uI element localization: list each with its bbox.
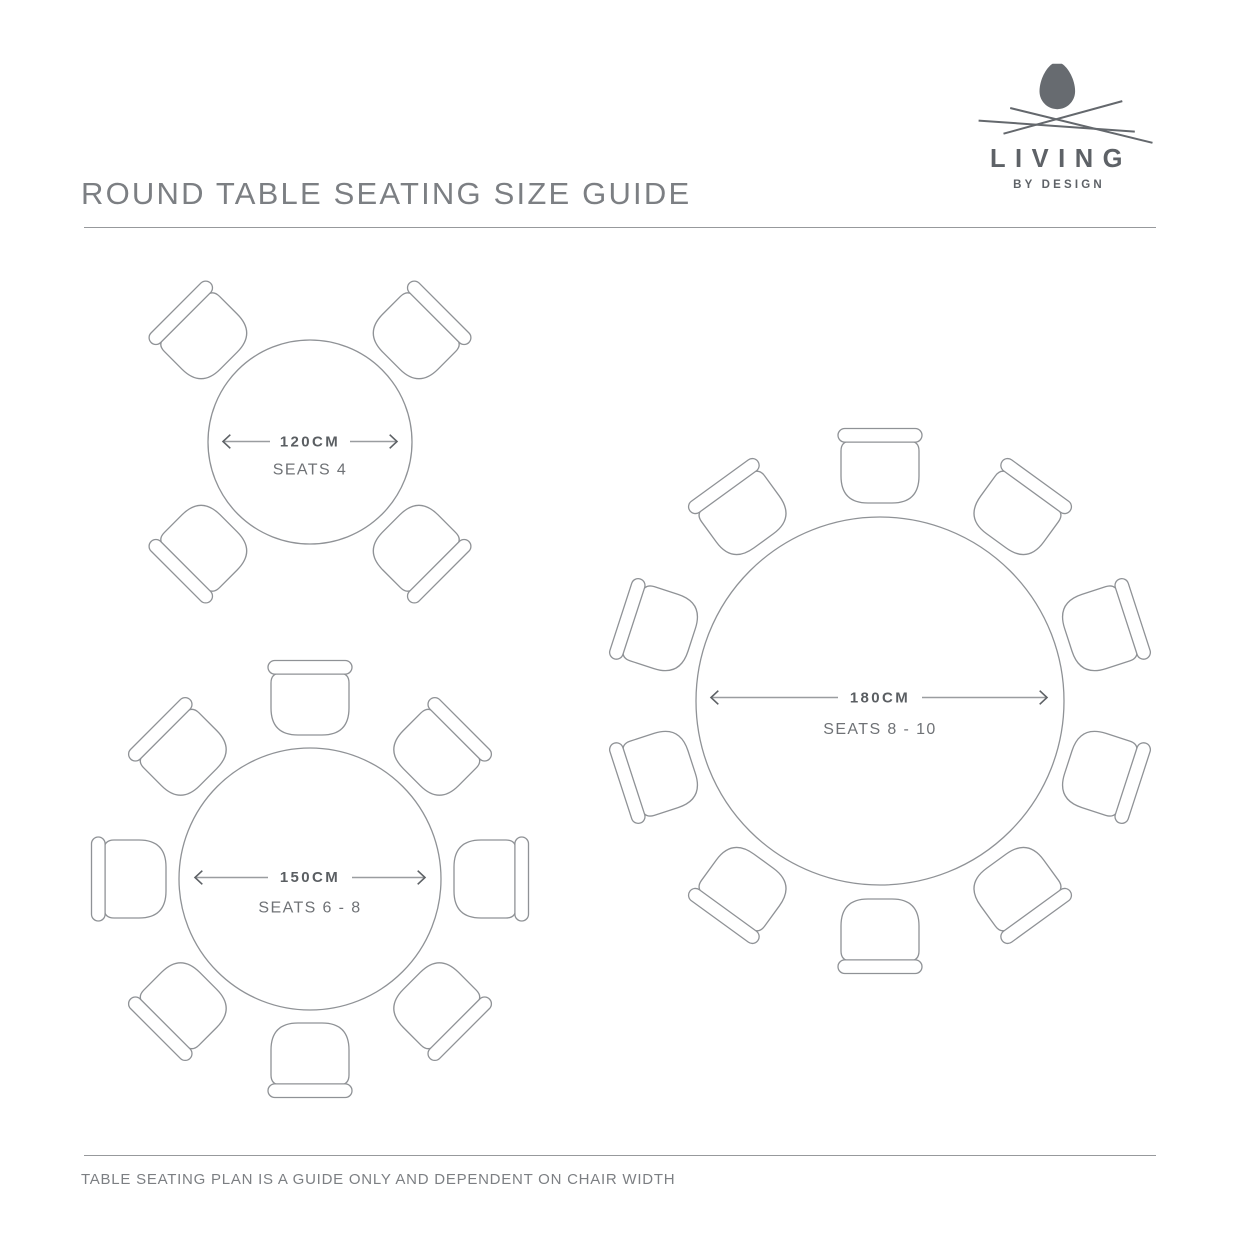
svg-text:180CM: 180CM bbox=[850, 690, 910, 707]
svg-text:SEATS 4: SEATS 4 bbox=[273, 462, 347, 479]
svg-text:ROUND TABLE SEATING SIZE GUIDE: ROUND TABLE SEATING SIZE GUIDE bbox=[81, 176, 691, 211]
svg-text:SEATS 6 - 8: SEATS 6 - 8 bbox=[258, 900, 361, 917]
svg-text:150CM: 150CM bbox=[280, 869, 340, 886]
svg-text:SEATS 8 - 10: SEATS 8 - 10 bbox=[823, 721, 936, 738]
svg-text:120CM: 120CM bbox=[280, 434, 340, 451]
svg-text:BY DESIGN: BY DESIGN bbox=[1013, 179, 1105, 191]
svg-text:TABLE SEATING PLAN IS A GUIDE: TABLE SEATING PLAN IS A GUIDE ONLY AND D… bbox=[81, 1171, 675, 1188]
svg-text:LIVING: LIVING bbox=[990, 145, 1132, 173]
